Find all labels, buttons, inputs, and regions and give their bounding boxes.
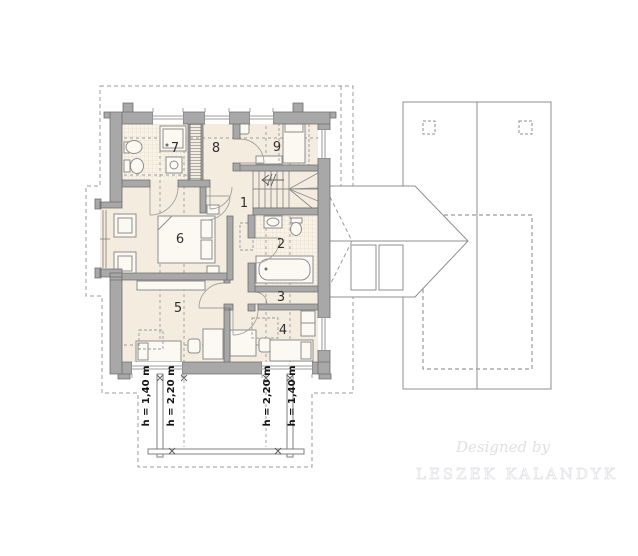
room-label-2: 2 <box>277 237 285 252</box>
dresser-room5 <box>137 281 205 290</box>
room-label-3: 3 <box>277 290 285 305</box>
floor-plan-drawing: 1 2 3 4 5 6 7 8 9 h = 1,40 m h = 2,20 m … <box>0 0 638 556</box>
bed-room6-pillow-bottom <box>201 240 212 259</box>
toilet7-bowl <box>131 159 144 174</box>
washer <box>166 157 182 173</box>
toilet7-tank <box>124 160 130 172</box>
watermark-designed-by: Designed by <box>455 438 551 456</box>
height-label-3: h = 2,20 m <box>262 365 273 426</box>
staircase-outline <box>253 171 318 208</box>
height-label-4: h = 1,40 m <box>287 365 298 426</box>
window-top-3 <box>250 112 273 124</box>
bathtub-drain <box>265 268 268 271</box>
window-right-1 <box>318 130 330 158</box>
height-label-2: h = 2,20 m <box>166 365 177 426</box>
room-label-9: 9 <box>273 140 281 155</box>
watermark: Designed by LESZEK KALANDYK <box>416 438 618 483</box>
sink2-basin <box>267 218 279 226</box>
shower-drain <box>166 144 169 147</box>
window-right-2 <box>318 318 330 350</box>
dormer-roof-window-left <box>351 245 376 290</box>
bed-room9-pillow <box>285 124 303 132</box>
bed-room4-pillow <box>301 342 311 359</box>
window-top-2 <box>205 112 229 124</box>
bed-room6-pillow-top <box>201 220 212 238</box>
chair-room4 <box>259 338 271 352</box>
porch-post-left <box>157 374 163 457</box>
window-top-1 <box>153 112 183 124</box>
room-label-5: 5 <box>174 301 182 316</box>
bed-room5-pillow <box>138 343 148 360</box>
room-label-6: 6 <box>176 232 184 247</box>
staircase <box>253 171 318 208</box>
closet-hatch <box>190 124 201 180</box>
room-label-8: 8 <box>212 141 220 156</box>
sink7-basin <box>126 141 142 154</box>
toilet2-bowl <box>291 223 302 236</box>
chair-room5 <box>188 339 200 353</box>
height-labels: h = 1,40 m h = 2,20 m h = 2,20 m h = 1,4… <box>141 365 298 426</box>
nightstand-top <box>207 205 219 214</box>
room-label-7: 7 <box>171 141 179 156</box>
floor-plan-page: 1 2 3 4 5 6 7 8 9 h = 1,40 m h = 2,20 m … <box>0 0 638 556</box>
height-label-1: h = 1,40 m <box>141 365 152 426</box>
desk-room5 <box>203 329 223 359</box>
dormer-roof-window-right <box>379 245 403 290</box>
room-label-4: 4 <box>279 323 287 338</box>
armchair-top-seat <box>118 218 132 233</box>
watermark-author: LESZEK KALANDYK <box>416 465 618 483</box>
room-label-1: 1 <box>240 196 248 211</box>
